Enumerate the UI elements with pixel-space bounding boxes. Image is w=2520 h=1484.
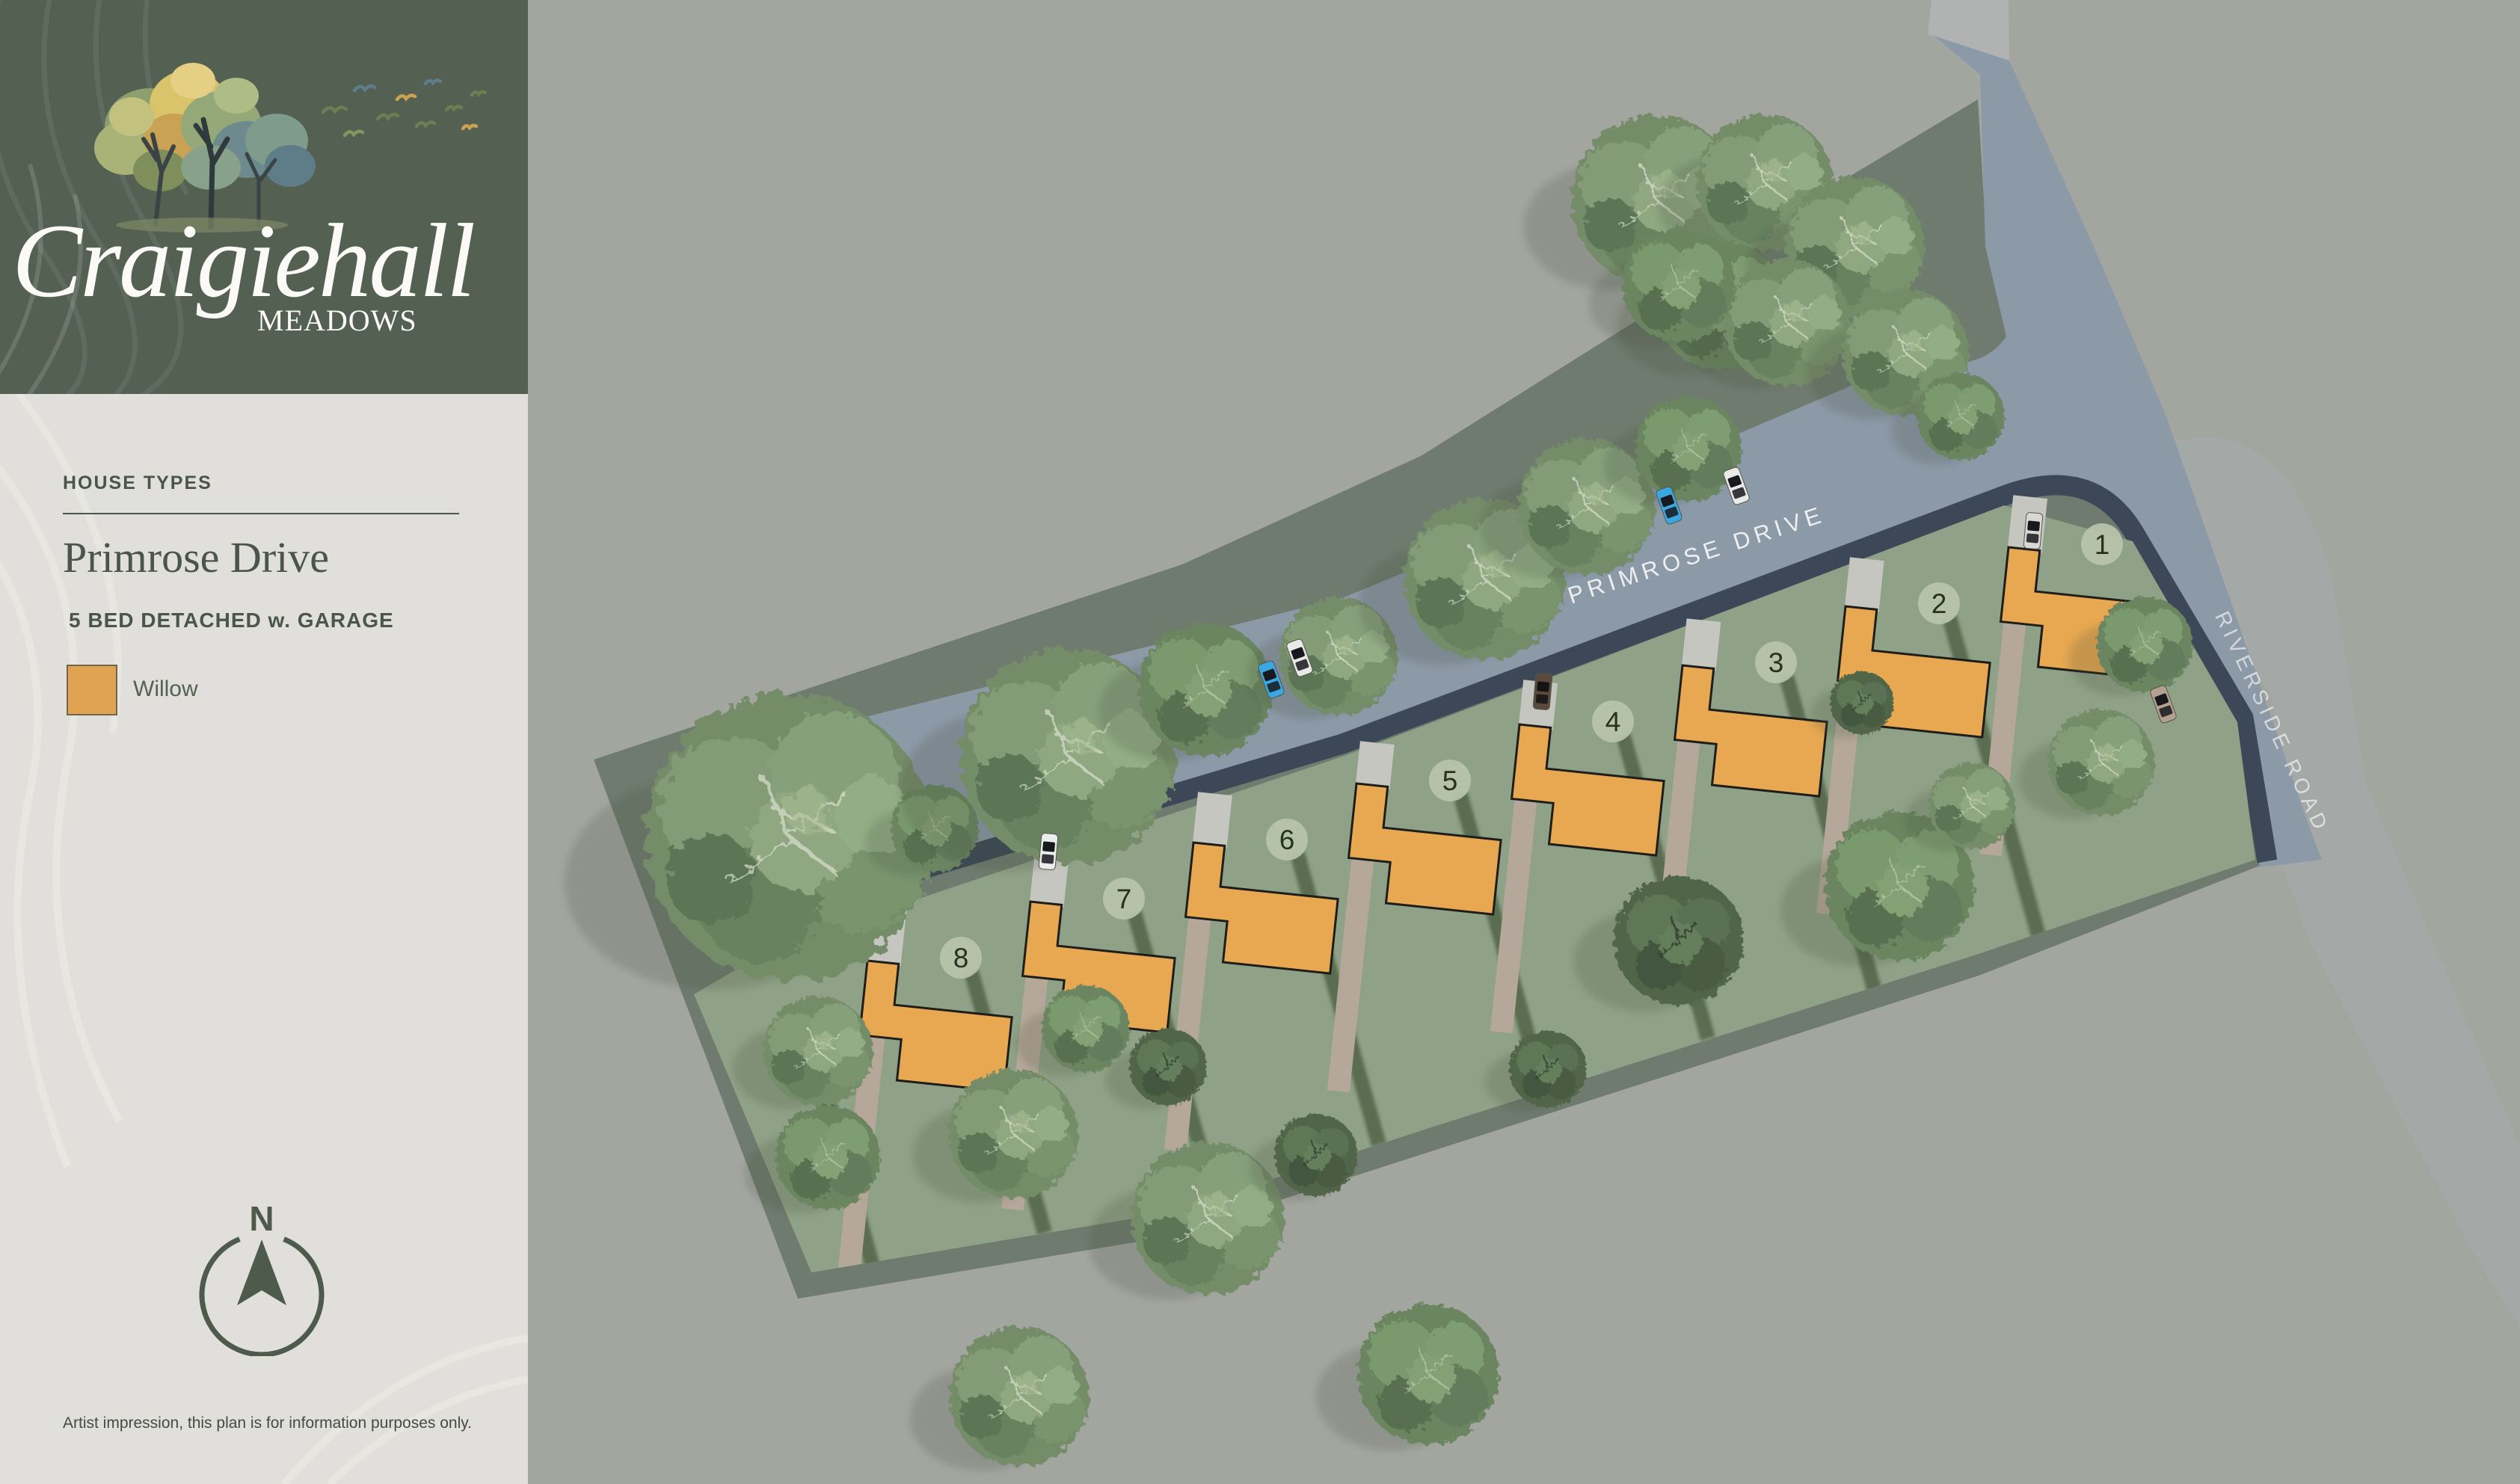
svg-text:1: 1 [2095,529,2110,560]
svg-text:2: 2 [1932,588,1947,619]
svg-text:N: N [249,1199,274,1238]
svg-text:8: 8 [953,943,969,973]
svg-text:7: 7 [1116,884,1132,914]
svg-text:Craigiehall: Craigiehall [12,203,474,319]
svg-text:6: 6 [1279,825,1295,855]
svg-text:3: 3 [1768,647,1784,678]
svg-text:5: 5 [1442,766,1458,796]
svg-text:MEADOWS: MEADOWS [257,304,417,337]
svg-text:4: 4 [1605,706,1621,737]
